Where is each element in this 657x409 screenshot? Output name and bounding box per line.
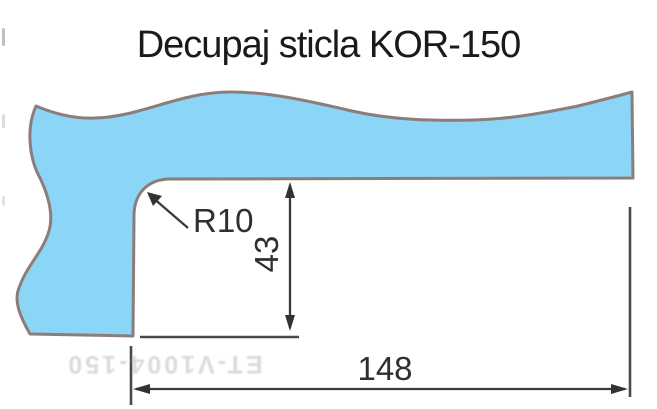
diagram-canvas: Decupaj sticla KOR-150 R10 43 148 ET-V10… [0, 0, 657, 409]
height-arrow-down [285, 315, 295, 331]
glass-cutout-drawing: R10 43 148 [0, 0, 657, 409]
width-dimension-label: 148 [357, 350, 412, 387]
glass-shape [17, 92, 633, 336]
scan-artifact [2, 196, 5, 206]
scan-artifact [2, 28, 5, 46]
width-arrow-left [133, 384, 150, 394]
height-dimension-label: 43 [248, 236, 285, 273]
scan-artifact [2, 114, 5, 128]
height-arrow-up [285, 182, 295, 198]
radius-dimension-label: R10 [193, 202, 254, 239]
width-arrow-right [611, 384, 628, 394]
bleedthrough-watermark: ET-V1004-150 [28, 349, 300, 378]
radius-leader-line [152, 197, 188, 228]
